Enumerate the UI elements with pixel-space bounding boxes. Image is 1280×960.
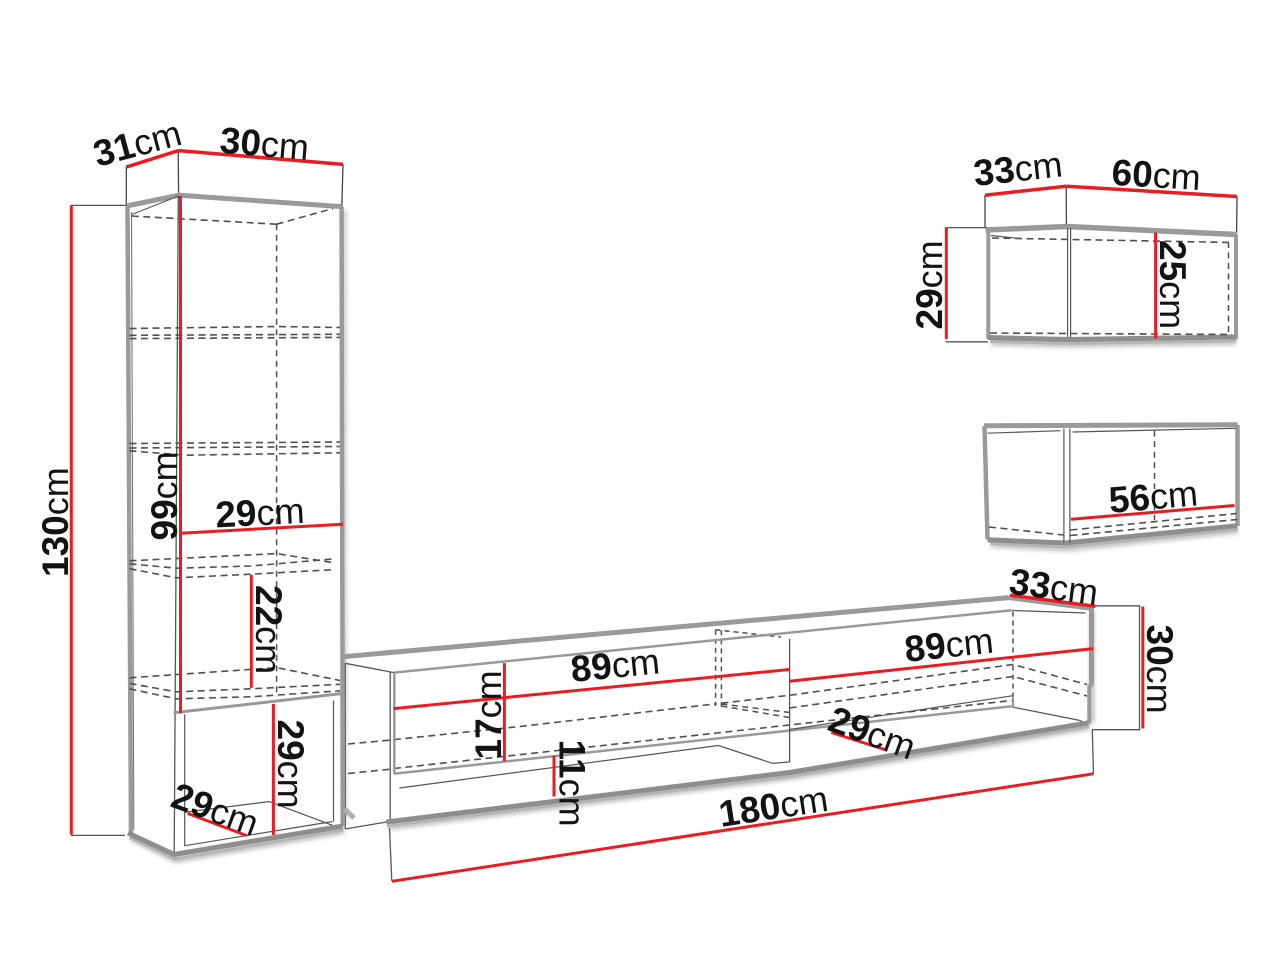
- svg-text:130cm: 130cm: [35, 467, 76, 577]
- svg-text:60cm: 60cm: [1111, 152, 1202, 198]
- svg-text:29cm: 29cm: [909, 240, 950, 329]
- svg-text:99cm: 99cm: [144, 451, 185, 540]
- svg-text:22cm: 22cm: [248, 585, 289, 674]
- svg-text:25cm: 25cm: [1152, 240, 1193, 329]
- svg-text:30cm: 30cm: [1139, 625, 1180, 714]
- svg-text:30cm: 30cm: [218, 120, 310, 168]
- svg-text:11cm: 11cm: [552, 740, 593, 827]
- svg-text:29cm: 29cm: [270, 720, 311, 809]
- svg-text:17cm: 17cm: [468, 670, 509, 759]
- svg-text:56cm: 56cm: [1107, 472, 1199, 521]
- svg-text:29cm: 29cm: [214, 490, 305, 536]
